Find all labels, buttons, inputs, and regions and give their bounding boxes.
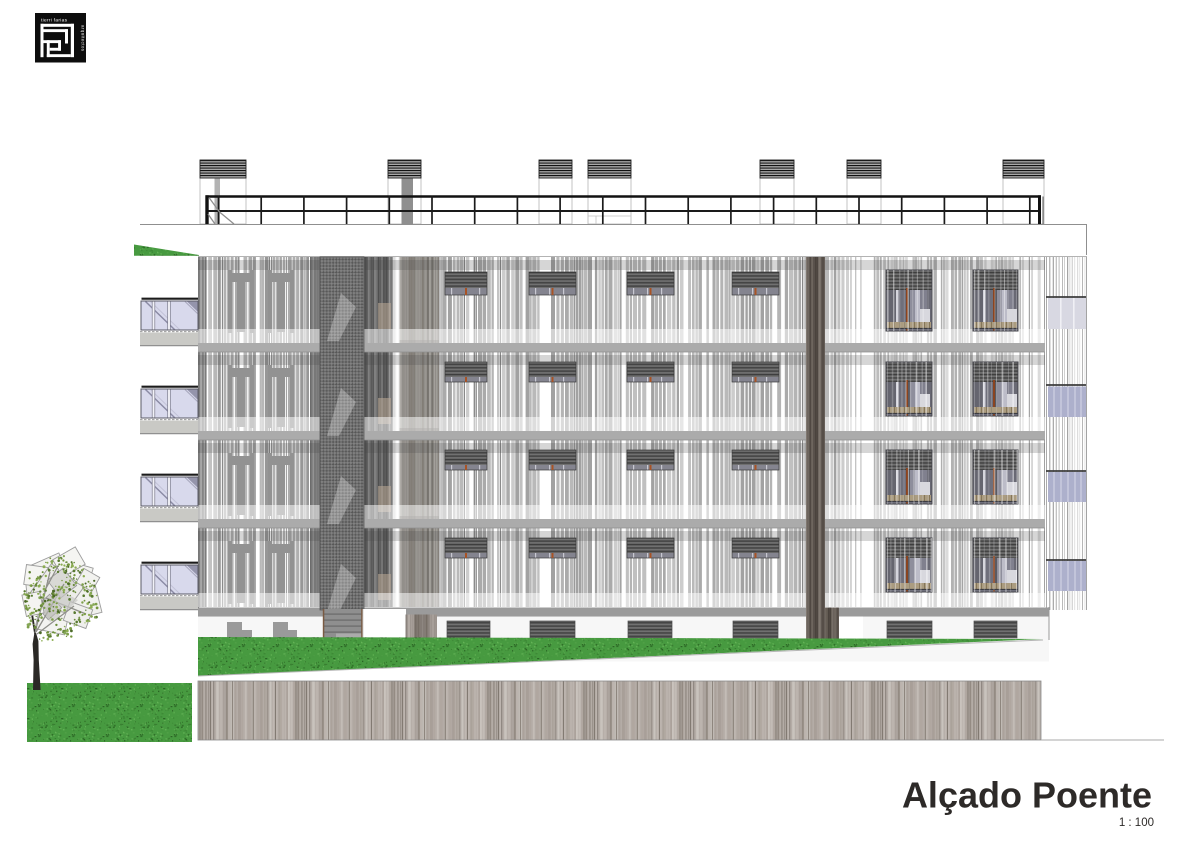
svg-text:1 : 100: 1 : 100 (1119, 817, 1154, 829)
svg-text:arquitectos: arquitectos (81, 25, 86, 52)
svg-text:Alçado Poente: Alçado Poente (902, 775, 1152, 816)
svg-text:tierri farias: tierri farias (41, 18, 68, 24)
